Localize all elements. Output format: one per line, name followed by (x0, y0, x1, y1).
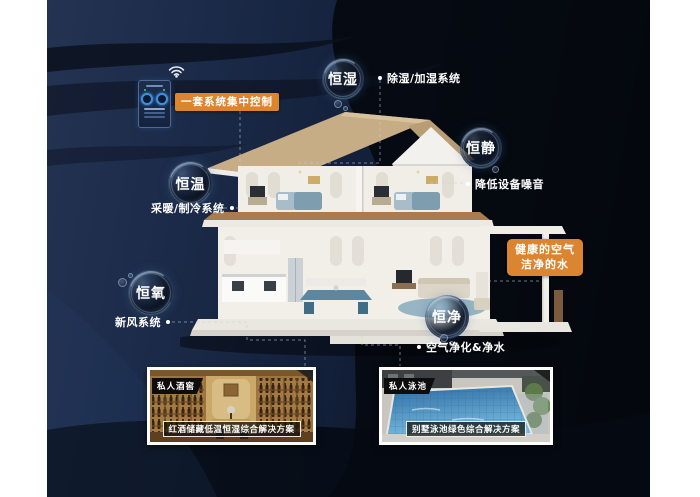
photo-caption: 别墅泳池绿色综合解决方案 (406, 421, 526, 437)
photo-tag: 私人酒窖 (152, 378, 203, 394)
central-control-label: 一套系统集中控制 (175, 93, 279, 111)
dial-knobs-icon (141, 93, 168, 105)
bullet-dot-icon (166, 320, 170, 324)
bubble-quiet-label: 恒静 (466, 138, 496, 158)
bubble-purity: 恒净 (425, 295, 469, 339)
photo-tag: 私人泳池 (384, 378, 435, 394)
bedroom-tv (250, 186, 265, 197)
healthy-air-water-box: 健康的空气 洁净的水 (507, 239, 583, 276)
kitchen-cabinets (224, 240, 280, 254)
note-dehumidify: 除湿/加湿系统 (378, 70, 461, 86)
wood-floor (204, 212, 490, 220)
note-noise: 降低设备噪音 (466, 176, 544, 192)
note-purify: 空气净化&净水 (417, 339, 505, 355)
bubble-quiet: 恒静 (460, 127, 502, 169)
bubble-purity-label: 恒净 (432, 307, 462, 327)
note-heating: 采暖/制冷系统 (151, 200, 234, 216)
deco-bubble (343, 106, 348, 111)
bullet-dot-icon (417, 345, 421, 349)
bubble-humidity: 恒湿 (322, 58, 364, 100)
bubble-oxygen-label: 恒氧 (136, 283, 166, 303)
photo-wine-cellar: 私人酒窖 红酒储藏低温恒湿综合解决方案 (147, 367, 316, 445)
smart-control-panel (138, 80, 171, 128)
living-tv (396, 270, 412, 283)
note-freshair: 新风系统 (115, 314, 170, 330)
bubble-oxygen: 恒氧 (128, 270, 174, 316)
bubble-humidity-label: 恒湿 (328, 69, 358, 89)
bullet-dot-icon (466, 182, 470, 186)
control-panel-screen (141, 83, 168, 125)
wifi-icon (168, 64, 185, 78)
terrace (476, 322, 572, 332)
bedroom-tv (374, 186, 389, 197)
bullet-dot-icon (230, 206, 234, 210)
porch-pillar (554, 290, 563, 324)
smart-home-poster: 一套系统集中控制 恒湿 恒静 恒温 恒氧 恒净 除湿/加湿系统 降低设备噪音 采… (0, 0, 700, 497)
bullet-dot-icon (378, 76, 382, 80)
panel-title-row (146, 85, 162, 87)
porch-roof (480, 226, 566, 234)
deco-bubble (334, 100, 342, 108)
deco-bubble (492, 166, 499, 173)
bubble-temperature-label: 恒温 (176, 174, 206, 194)
photo-caption: 红酒储藏低温恒湿综合解决方案 (162, 421, 300, 437)
deco-bubble (118, 278, 127, 287)
photo-pool: 私人泳池 别墅泳池绿色综合解决方案 (379, 367, 553, 445)
deco-bubble (128, 273, 133, 278)
dining-table (300, 290, 372, 300)
